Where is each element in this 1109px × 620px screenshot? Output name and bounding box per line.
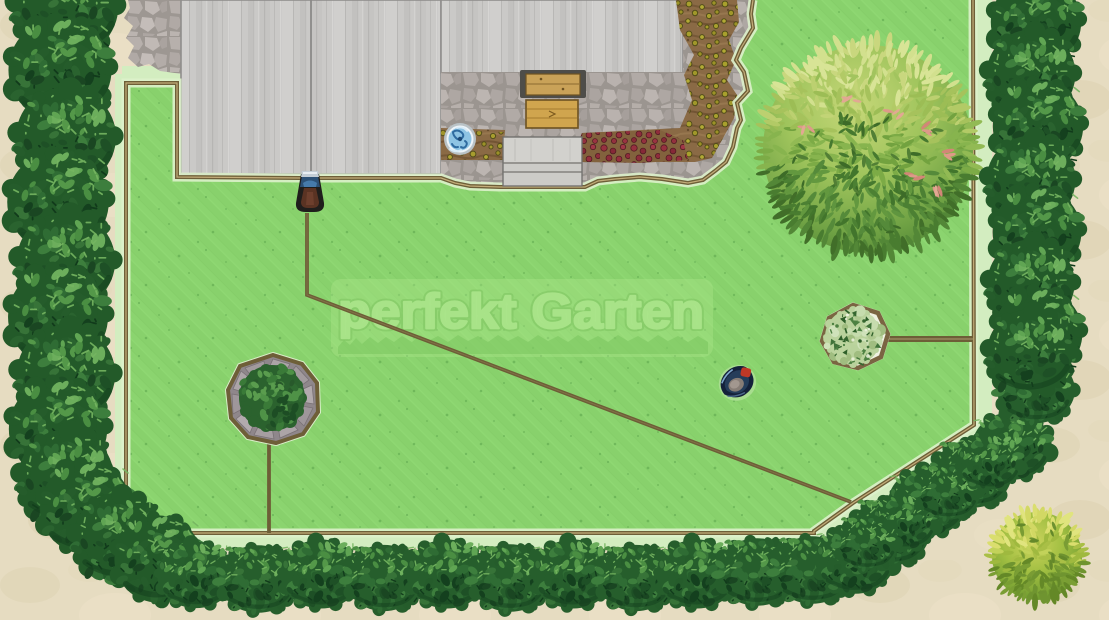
svg-text:perfekt Garten: perfekt Garten xyxy=(338,285,704,339)
